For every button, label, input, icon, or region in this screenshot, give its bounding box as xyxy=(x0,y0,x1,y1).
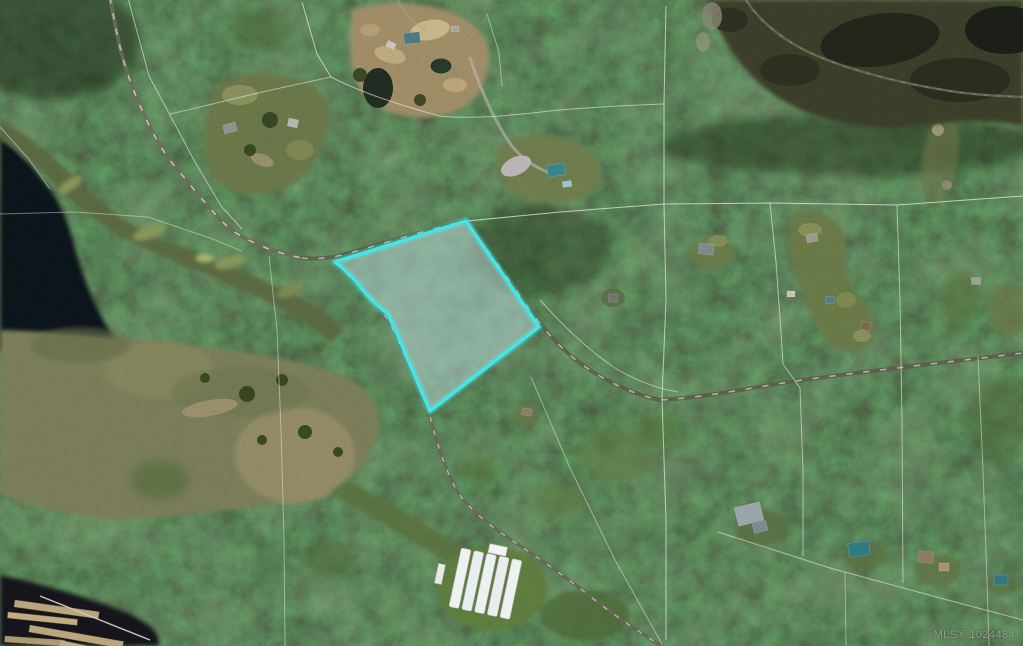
shed xyxy=(972,278,981,285)
outbuilding xyxy=(939,563,949,571)
satellite-map: MLS® 1024484 xyxy=(0,0,1023,646)
teal-roof-house xyxy=(547,163,566,177)
teal-shed xyxy=(825,296,835,304)
mls-watermark: MLS® 1024484 xyxy=(934,629,1015,641)
aerial-imagery xyxy=(0,0,1023,646)
cabin xyxy=(521,408,532,417)
teal-roof-house xyxy=(848,541,871,558)
farm-building xyxy=(806,233,818,243)
house xyxy=(698,243,714,256)
shed xyxy=(787,291,795,297)
barn xyxy=(860,321,871,330)
teal-roof-house xyxy=(994,575,1008,585)
teal-roof-building xyxy=(403,32,420,45)
house xyxy=(918,551,934,564)
pool xyxy=(562,180,572,187)
outbuilding xyxy=(287,118,298,128)
cabin xyxy=(609,294,618,302)
shed xyxy=(451,26,459,32)
